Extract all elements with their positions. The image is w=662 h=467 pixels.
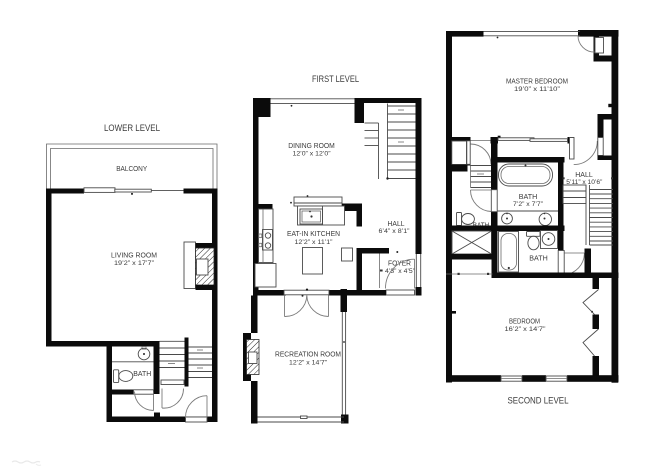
svg-text:12’2” x 14’7”: 12’2” x 14’7” [289, 359, 327, 366]
svg-text:BATH: BATH [133, 371, 151, 378]
svg-text:FIRST LEVEL: FIRST LEVEL [312, 74, 359, 84]
svg-text:SECOND LEVEL: SECOND LEVEL [508, 395, 569, 405]
svg-text:16’2” x 14’7”: 16’2” x 14’7” [505, 326, 546, 333]
svg-text:12’0” x 12’0”: 12’0” x 12’0” [293, 151, 331, 158]
svg-text:LIVING ROOM: LIVING ROOM [111, 252, 157, 259]
svg-text:19’2” x 17’7”: 19’2” x 17’7” [114, 260, 154, 267]
svg-text:LOWER LEVEL: LOWER LEVEL [104, 123, 160, 133]
svg-text:RECREATION ROOM: RECREATION ROOM [275, 351, 341, 358]
svg-text:BATH: BATH [529, 255, 548, 262]
svg-text:12’2” x 11’1”: 12’2” x 11’1” [295, 239, 333, 246]
svg-text:BEDROOM: BEDROOM [509, 318, 540, 325]
svg-text:HALL: HALL [388, 221, 405, 228]
svg-text:6’4” x 8’1”: 6’4” x 8’1” [379, 228, 410, 235]
svg-text:19’0” x 11’10”: 19’0” x 11’10” [514, 86, 560, 93]
svg-text:HALL: HALL [575, 172, 593, 179]
svg-text:7’2” x 7’7”: 7’2” x 7’7” [513, 201, 543, 208]
svg-text:MASTER BEDROOM: MASTER BEDROOM [506, 78, 568, 85]
svg-text:FOYER: FOYER [388, 261, 411, 268]
svg-text:BATH: BATH [519, 194, 538, 201]
svg-text:DINING ROOM: DINING ROOM [288, 143, 335, 150]
svg-text:BALCONY: BALCONY [116, 166, 147, 173]
svg-text:EAT-IN KITCHEN: EAT-IN KITCHEN [287, 231, 340, 238]
